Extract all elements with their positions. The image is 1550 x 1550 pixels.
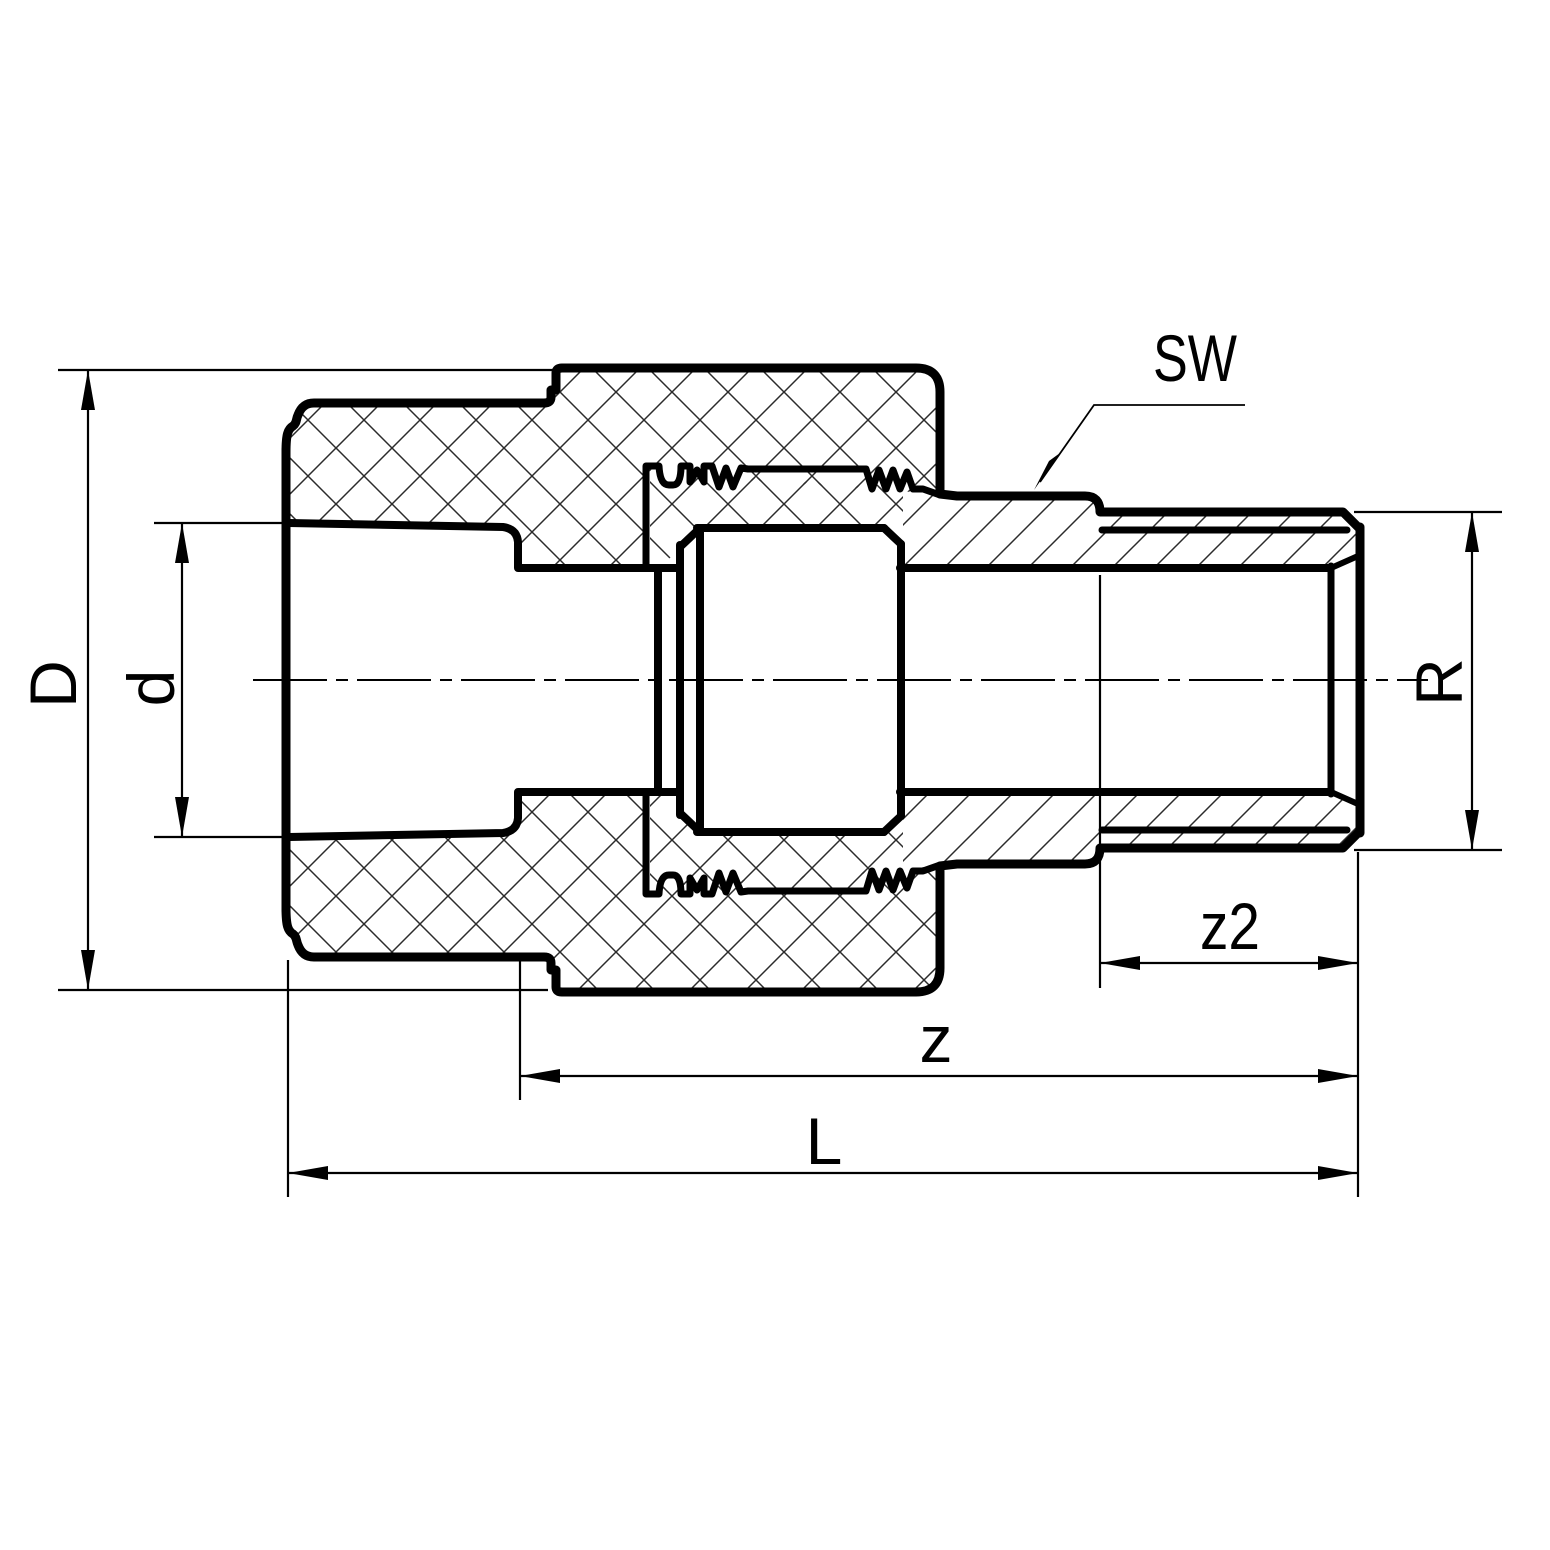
drawing-canvas: SW D d R z2 z L xyxy=(0,0,1550,1550)
label-z: z xyxy=(920,1002,953,1076)
label-z2: z2 xyxy=(1200,889,1260,963)
label-SW: SW xyxy=(1153,321,1238,395)
leader-SW xyxy=(1034,405,1245,490)
label-L: L xyxy=(806,1104,843,1178)
label-R: R xyxy=(1402,658,1476,706)
dimension-z2 xyxy=(1100,575,1358,1197)
technical-drawing: SW D d R z2 z L xyxy=(0,0,1550,1550)
label-d: d xyxy=(114,670,188,707)
label-D: D xyxy=(16,660,90,708)
